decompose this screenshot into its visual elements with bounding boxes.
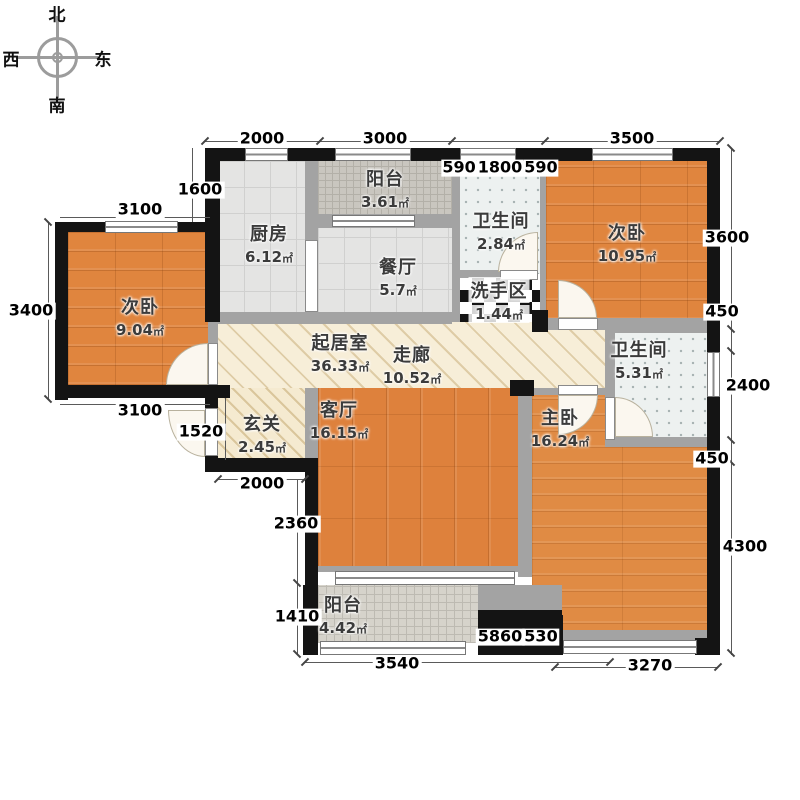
- window-bedroom-tr-top: [592, 148, 673, 161]
- dim-3000: 3000: [361, 131, 410, 148]
- room-label-kitchen: 厨房 6.12㎡: [245, 220, 293, 266]
- dim-3100-top: 3100: [116, 202, 165, 219]
- tick: [606, 658, 614, 666]
- room-label-balcony-top: 阳台 3.61㎡: [361, 165, 409, 211]
- dim-1520: 1520: [177, 424, 226, 441]
- door-bedroom-tr: [558, 318, 598, 330]
- room-label-wash-area: 洗手区 1.44㎡: [469, 277, 530, 323]
- door-bedroom-left: [208, 343, 218, 385]
- tick: [716, 137, 724, 145]
- wall-junction-block: [510, 380, 534, 396]
- wall-wash-left: [452, 160, 460, 322]
- room-label-dining: 餐厅 5.7㎡: [379, 253, 417, 299]
- window-bedroom-left-top: [105, 221, 178, 233]
- dim-590-a: 590: [441, 160, 476, 177]
- room-label-corridor: 走廊 10.52㎡: [383, 341, 441, 387]
- wall-bath-right-bottom: [605, 437, 707, 447]
- compass-center-dot: [52, 52, 63, 63]
- dim-530: 530: [522, 629, 559, 646]
- dim-3100-bottom: 3100: [116, 403, 165, 420]
- dimline-right: [731, 148, 732, 655]
- room-label-master: 主卧 16.24㎡: [531, 404, 589, 450]
- dim-offsets-row: 5901800590: [441, 160, 558, 177]
- door-bath-right: [605, 397, 615, 440]
- room-label-bedroom-top-right: 次卧 10.95㎡: [598, 219, 656, 265]
- floor-plan: 北 南 西 东: [0, 0, 800, 800]
- compass-east-label: 东: [95, 46, 112, 71]
- dim-3500: 3500: [608, 131, 657, 148]
- wall-bedtr-bl-block: [532, 310, 548, 332]
- dim-2000-top: 2000: [238, 131, 287, 148]
- wall-kitchen-bottom: [218, 312, 452, 324]
- dimline-3540: [305, 662, 610, 663]
- door-master: [558, 385, 598, 395]
- compass-west-label: 西: [3, 46, 20, 71]
- window-living-south: [335, 571, 515, 585]
- door-kitchen: [305, 240, 318, 312]
- dim-2360: 2360: [272, 516, 321, 533]
- compass: 北 南 西 东: [0, 0, 120, 120]
- dim-3270: 3270: [626, 658, 675, 675]
- tick: [714, 663, 722, 671]
- dim-450-bottom: 450: [693, 451, 730, 468]
- dim-2000-foyer: 2000: [238, 476, 287, 493]
- wall-foyer-left-a: [205, 388, 218, 408]
- compass-south-label: 南: [49, 92, 66, 117]
- dim-5860: 5860: [476, 629, 525, 646]
- room-label-bedroom-left: 次卧 9.04㎡: [116, 293, 164, 339]
- dim-590-b: 590: [523, 160, 558, 177]
- wall-right-upper: [707, 148, 720, 352]
- dim-1600: 1600: [176, 182, 225, 199]
- dim-1800: 1800: [477, 160, 524, 177]
- dim-2400: 2400: [724, 378, 773, 395]
- wall-balcony-bottom-right: [478, 585, 562, 613]
- wall-kitchen-left: [205, 148, 220, 322]
- wall-bedl-bottom: [55, 385, 230, 398]
- dim-1410: 1410: [273, 609, 322, 626]
- dim-3400: 3400: [7, 303, 56, 320]
- wall-bedl-left: [55, 222, 68, 400]
- dim-450-top: 450: [703, 304, 740, 321]
- dim-4300: 4300: [721, 539, 770, 556]
- room-label-living-main: 起居室 36.33㎡: [311, 329, 369, 375]
- wall-top-2: [288, 148, 335, 161]
- room-label-balcony-bottom: 阳台 4.42㎡: [319, 591, 367, 637]
- compass-north-label: 北: [49, 1, 66, 26]
- window-balcony-top: [335, 148, 411, 161]
- room-label-foyer: 玄关 2.45㎡: [238, 410, 286, 456]
- wall-kitchen-dining: [305, 160, 318, 240]
- wall-wash-right: [540, 160, 546, 322]
- wall-foyer-bottom: [205, 458, 318, 472]
- window-bath-right: [707, 352, 720, 397]
- wall-master-br-corner: [695, 638, 720, 655]
- wall-bath-right-top: [615, 326, 707, 333]
- dim-3540: 3540: [373, 656, 422, 673]
- window-kitchen-top: [245, 148, 288, 161]
- wall-right-lower: [707, 397, 720, 655]
- dim-3600: 3600: [703, 230, 752, 247]
- room-label-living: 客厅 16.15㎡: [310, 396, 368, 442]
- window-master-south: [563, 640, 697, 654]
- window-balcony-dining-slide: [332, 215, 415, 227]
- room-label-bath-top: 卫生间 2.84㎡: [473, 207, 530, 253]
- room-label-bath-right: 卫生间 5.31㎡: [611, 336, 668, 382]
